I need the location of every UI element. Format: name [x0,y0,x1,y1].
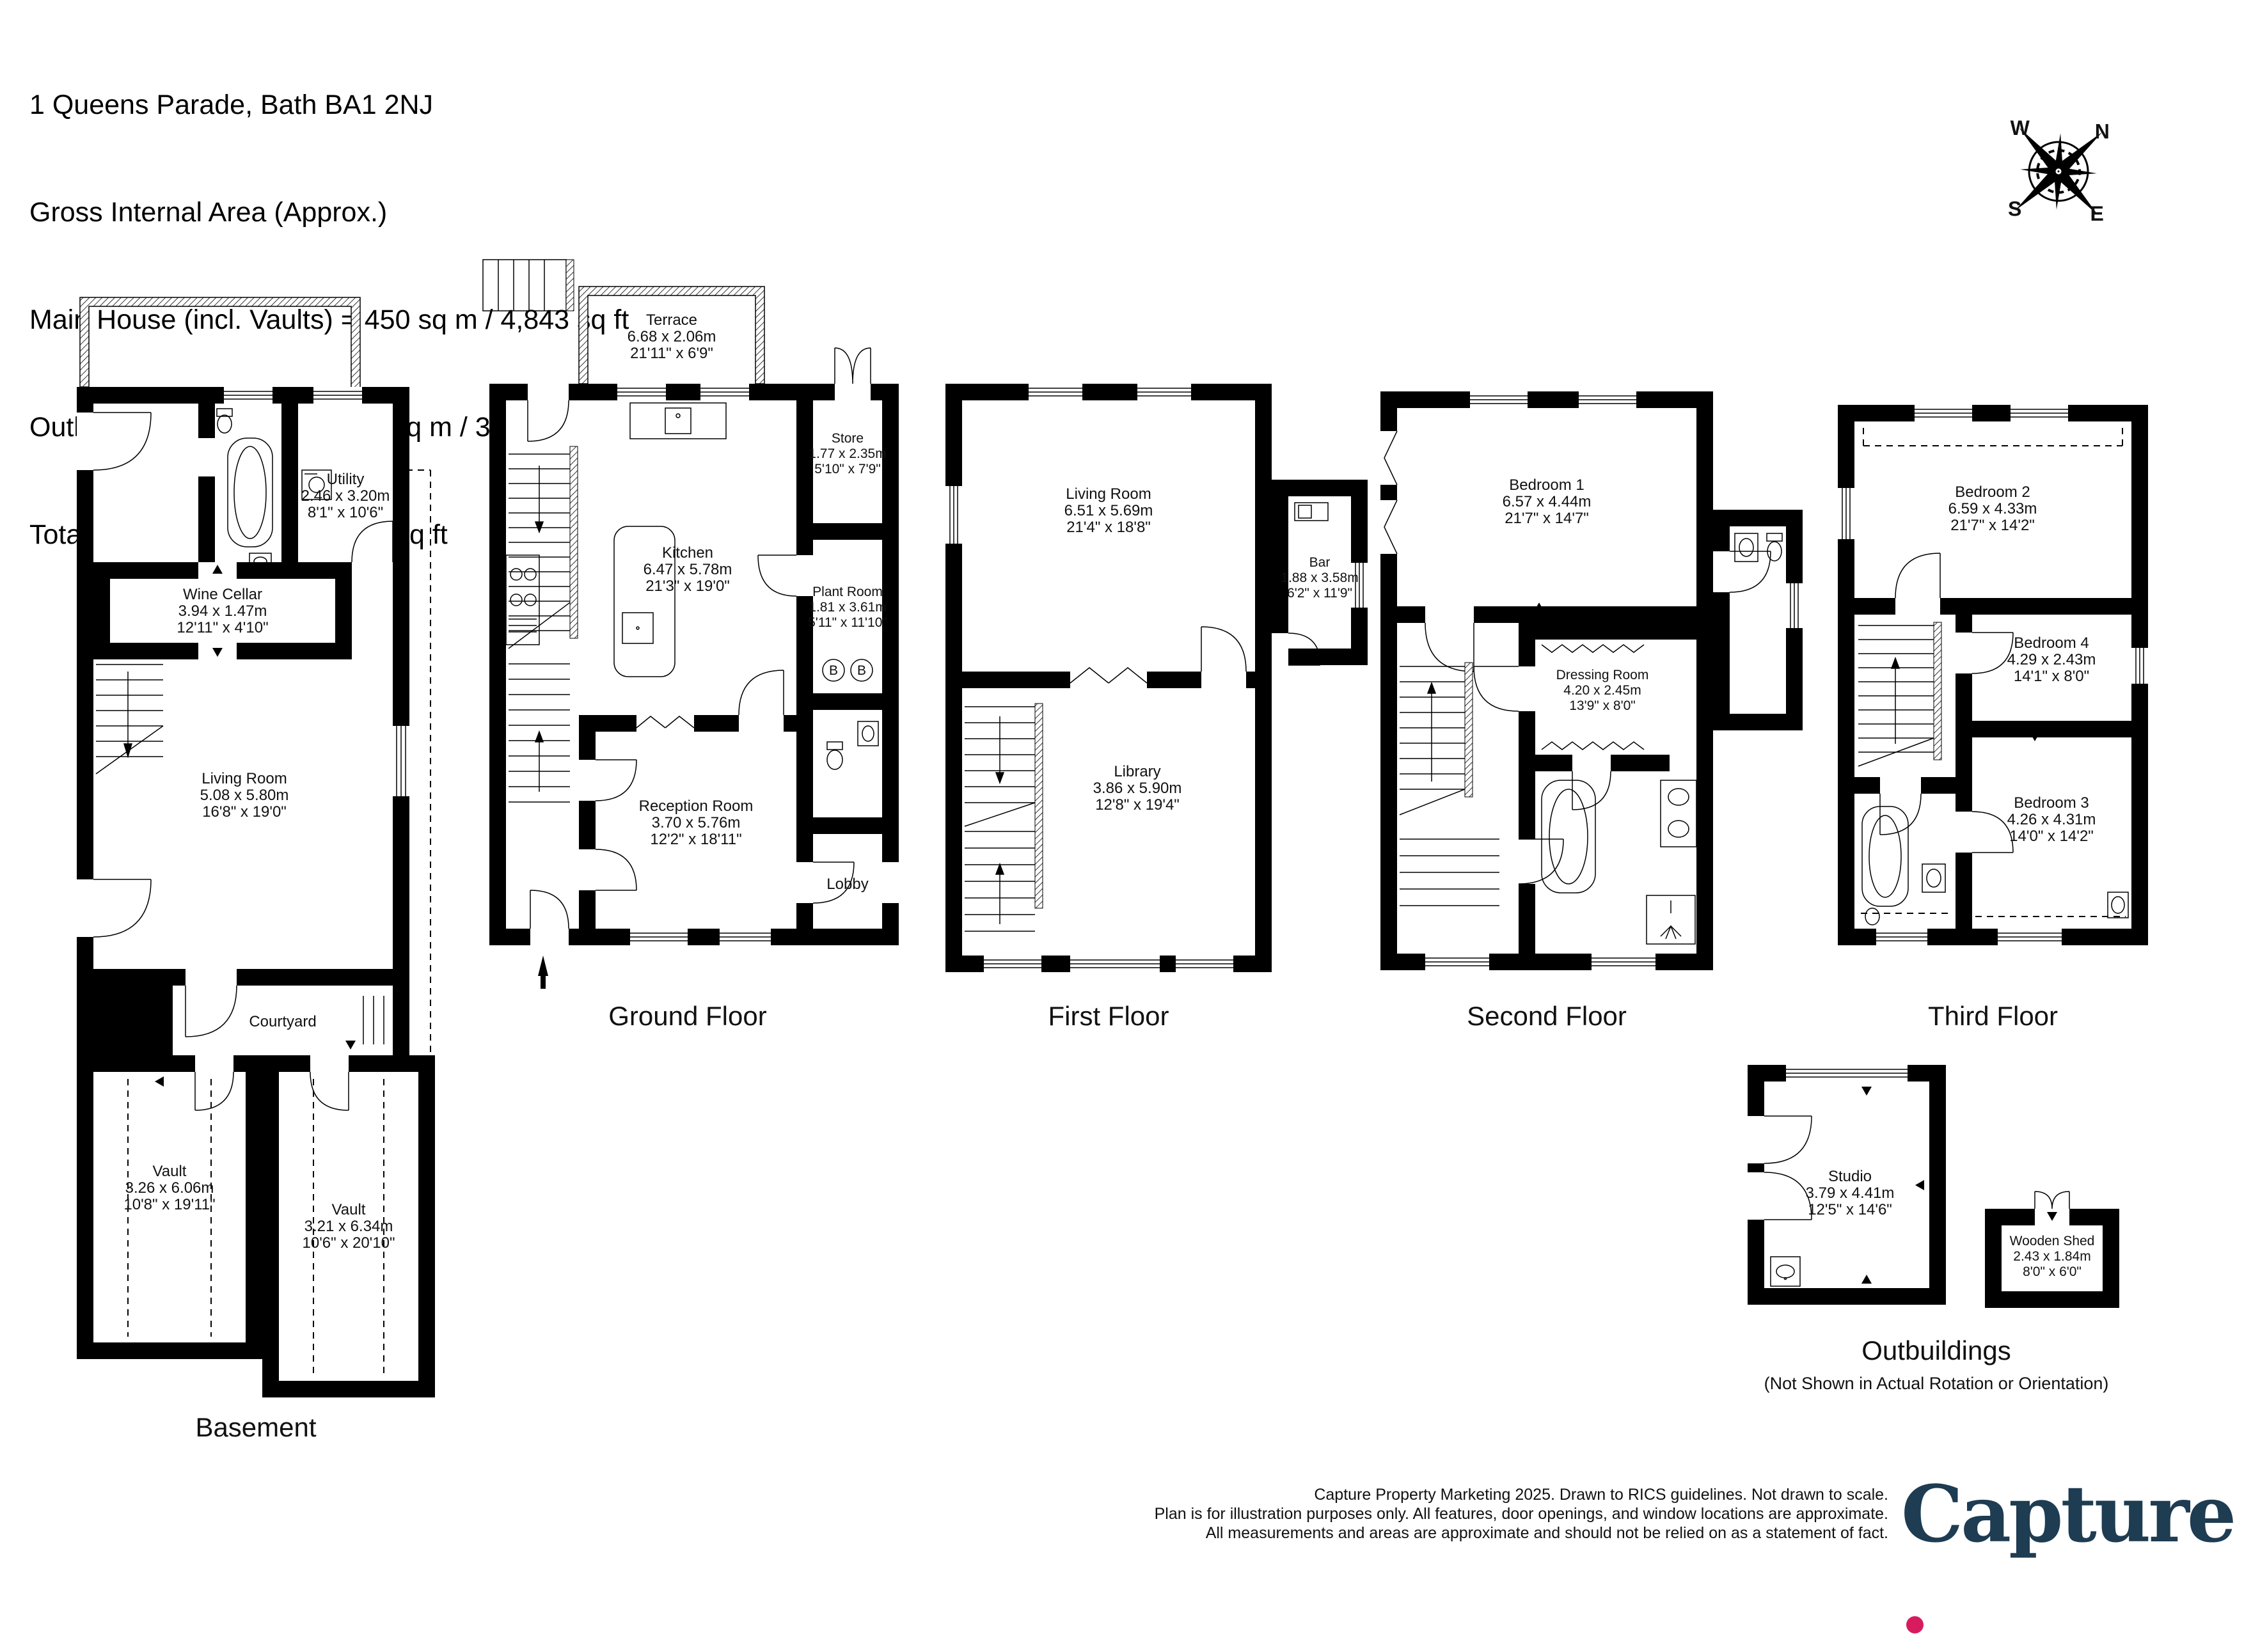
floor-label-first: First Floor [945,1001,1272,1032]
svg-text:Vault: Vault [332,1201,366,1218]
outbuildings-label: Outbuildings [1748,1335,2125,1366]
svg-text:2.43 x 1.84m: 2.43 x 1.84m [2013,1249,2090,1264]
svg-text:14'0" x 14'2": 14'0" x 14'2" [2009,828,2094,845]
svg-text:Dressing Room: Dressing Room [1556,668,1649,682]
svg-text:3.86 x 5.90m: 3.86 x 5.90m [1093,780,1182,797]
compass-n: N [2095,120,2110,143]
svg-text:6.68 x 2.06m: 6.68 x 2.06m [628,328,716,345]
svg-text:Store: Store [832,431,864,446]
svg-text:B: B [857,663,866,678]
room-label-living-room: Living Room 6.51 x 5.69m 21'4" x 18'8" [1064,485,1153,536]
svg-text:Wine Cellar: Wine Cellar [183,586,262,603]
svg-text:Living Room: Living Room [1066,485,1151,503]
room-label-wine-cellar: Wine Cellar 3.94 x 1.47m 12'11" x 4'10" [177,586,268,636]
svg-text:Bedroom 1: Bedroom 1 [1509,476,1584,494]
first-walls [945,384,1368,972]
outbuildings-note: (Not Shown in Actual Rotation or Orienta… [1728,1374,2144,1394]
svg-text:14'1" x 8'0": 14'1" x 8'0" [2014,668,2089,685]
svg-text:Bar: Bar [1309,555,1331,570]
svg-text:21'3" x 19'0": 21'3" x 19'0" [645,578,730,595]
compass-s: S [2008,198,2021,221]
svg-text:21'4" x 18'8": 21'4" x 18'8" [1066,519,1151,536]
door-arc [2035,1192,2069,1209]
svg-text:Bedroom 4: Bedroom 4 [2014,634,2089,652]
svg-text:3.94 x 1.47m: 3.94 x 1.47m [178,602,267,620]
svg-text:5'10" x 7'9": 5'10" x 7'9" [814,462,881,476]
room-label-bedroom1: Bedroom 1 6.57 x 4.44m 21'7" x 14'7" [1503,476,1592,527]
svg-text:6.51 x 5.69m: 6.51 x 5.69m [1064,502,1153,519]
svg-text:6.57 x 4.44m: 6.57 x 4.44m [1503,493,1592,510]
room-label-dressing: Dressing Room 4.20 x 2.45m 13'9" x 8'0" [1556,668,1649,713]
svg-text:10'8" x 19'11": 10'8" x 19'11" [123,1196,215,1213]
entrance-arrow-icon [538,956,548,989]
svg-text:4.20 x 2.45m: 4.20 x 2.45m [1563,683,1641,698]
svg-text:12'2" x 18'11": 12'2" x 18'11" [650,831,741,848]
disclaimer-line-1: Capture Property Marketing 2025. Drawn t… [1087,1485,1888,1504]
room-label-bedroom3: Bedroom 3 4.26 x 4.31m 14'0" x 14'2" [2007,794,2096,845]
compass-w: W [2011,116,2030,139]
studio-plan: Studio 3.79 x 4.41m 12'5" x 14'6" [1748,1065,1946,1305]
svg-text:3.70 x 5.76m: 3.70 x 5.76m [652,814,741,831]
svg-text:16'8" x 19'0": 16'8" x 19'0" [202,803,287,821]
svg-text:Reception Room: Reception Room [639,798,754,815]
svg-text:1.81 x 3.61m: 1.81 x 3.61m [809,600,886,615]
room-label-terrace: Terrace 6.68 x 2.06m 21'11" x 6'9" [628,311,716,362]
svg-text:Living Room: Living Room [201,770,287,787]
svg-text:B: B [829,663,838,678]
svg-text:1.77 x 2.35m: 1.77 x 2.35m [809,446,886,461]
wooden-shed-plan: Wooden Shed 2.43 x 1.84m 8'0" x 6'0" [1985,1167,2119,1308]
svg-text:Plant Room: Plant Room [812,585,883,599]
room-label-reception: Reception Room 3.70 x 5.76m 12'2" x 18'1… [639,798,754,848]
capture-logo-text: Capture [1901,1468,2234,1560]
room-label-plant-room: Plant Room 1.81 x 3.61m 5'11" x 11'10" [808,585,887,630]
svg-text:3.26 x 6.06m: 3.26 x 6.06m [125,1179,214,1197]
svg-text:Studio: Studio [1828,1168,1872,1185]
svg-text:5'11" x 11'10": 5'11" x 11'10" [808,615,887,630]
svg-text:3.21 x 6.34m: 3.21 x 6.34m [304,1218,393,1235]
svg-text:Vault: Vault [153,1163,187,1180]
capture-logo-dot-icon [1906,1616,1924,1633]
svg-text:Wooden Shed: Wooden Shed [2010,1234,2095,1248]
svg-text:21'7" x 14'7": 21'7" x 14'7" [1505,510,1589,527]
svg-text:6.59 x 4.33m: 6.59 x 4.33m [1948,500,2037,517]
basement-plan: Utility 2.46 x 3.20m 8'1" x 10'6" Wine C… [77,278,435,1404]
capture-logo: Capture [1901,1468,2244,1652]
svg-text:4.29 x 2.43m: 4.29 x 2.43m [2007,651,2096,668]
svg-text:21'7" x 14'2": 21'7" x 14'2" [1950,517,2035,534]
room-label-bedroom4: Bedroom 4 4.29 x 2.43m 14'1" x 8'0" [2007,634,2096,685]
svg-text:12'11" x 4'10": 12'11" x 4'10" [177,619,268,636]
compass-e: E [2090,202,2104,225]
floor-label-basement: Basement [77,1412,435,1443]
svg-text:8'1" x 10'6": 8'1" x 10'6" [308,504,383,521]
svg-text:4.26 x 4.31m: 4.26 x 4.31m [2007,811,2096,828]
svg-text:13'9" x 8'0": 13'9" x 8'0" [1569,698,1636,713]
svg-text:6.47 x 5.78m: 6.47 x 5.78m [644,561,732,578]
svg-text:10'6" x 20'10": 10'6" x 20'10" [303,1234,395,1252]
room-label-courtyard: Courtyard [249,1013,316,1030]
svg-text:Terrace: Terrace [646,311,697,329]
third-floor-plan: Bedroom 2 6.59 x 4.33m 21'7" x 14'2" Bed… [1838,405,2148,945]
second-floor-plan: Bedroom 1 6.57 x 4.44m 21'7" x 14'7" Dre… [1380,391,1803,970]
room-label-living-room: Living Room 5.08 x 5.80m 16'8" x 19'0" [200,770,289,821]
gia-line: Gross Internal Area (Approx.) [29,194,629,230]
svg-text:8'0" x 6'0": 8'0" x 6'0" [2023,1264,2082,1279]
disclaimer-block: Capture Property Marketing 2025. Drawn t… [1087,1485,1888,1543]
floor-label-second: Second Floor [1380,1001,1713,1032]
svg-text:Bedroom 2: Bedroom 2 [1955,484,2030,501]
disclaimer-line-2: Plan is for illustration purposes only. … [1087,1504,1888,1523]
svg-text:1.88 x 3.58m: 1.88 x 3.58m [1281,570,1358,585]
page-title: 1 Queens Parade, Bath BA1 2NJ [29,87,629,123]
room-label-bedroom2: Bedroom 2 6.59 x 4.33m 21'7" x 14'2" [1948,484,2037,534]
svg-text:12'8" x 19'4": 12'8" x 19'4" [1095,796,1180,814]
floor-label-third: Third Floor [1838,1001,2148,1032]
svg-text:Utility: Utility [327,471,365,488]
disclaimer-line-3: All measurements and areas are approxima… [1087,1523,1888,1543]
compass-rose-icon: N E S W [1995,107,2122,235]
first-floor-plan: Living Room 6.51 x 5.69m 21'4" x 18'8" B… [945,384,1368,975]
svg-text:Kitchen: Kitchen [662,544,713,562]
svg-text:5.08 x 5.80m: 5.08 x 5.80m [200,787,289,804]
exterior-stairs-icon [483,260,574,311]
svg-text:Library: Library [1114,763,1160,780]
svg-text:2.46 x 3.20m: 2.46 x 3.20m [301,487,390,505]
svg-text:6'2" x 11'9": 6'2" x 11'9" [1287,586,1352,601]
svg-text:12'5" x 14'6": 12'5" x 14'6" [1808,1201,1892,1218]
svg-text:Bedroom 3: Bedroom 3 [2014,794,2089,812]
floor-label-ground: Ground Floor [477,1001,899,1032]
svg-text:3.79 x 4.41m: 3.79 x 4.41m [1806,1184,1895,1202]
svg-text:21'11" x 6'9": 21'11" x 6'9" [630,345,713,362]
room-label-lobby: Lobby [826,876,868,893]
ground-floor-plan: B B Terrace 6.68 x 2.06m 21'11" x 6'9" K… [477,255,899,990]
